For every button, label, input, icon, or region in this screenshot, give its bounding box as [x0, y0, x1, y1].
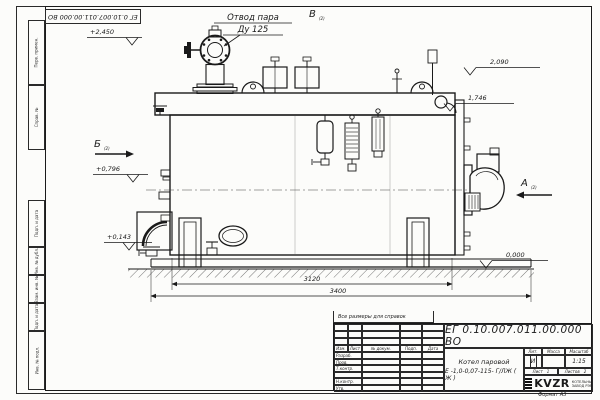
tb-mass-value	[542, 355, 565, 368]
tb-scale-header: Масштаб	[565, 348, 593, 355]
tb-sheet: Лист1	[524, 368, 558, 375]
tb-col-izm: Изм.	[334, 345, 348, 352]
kvzr-logo-icon	[524, 378, 532, 389]
tb-blank	[334, 324, 348, 331]
tb-blank	[400, 352, 422, 359]
tb-blank	[422, 338, 444, 345]
tb-row-nkontr: Н.контр.	[334, 378, 362, 385]
margin-box-perv-primen: Перв. примен.	[28, 20, 45, 85]
tb-blank	[362, 385, 400, 392]
margin-box-sprav: Справ. №	[28, 85, 45, 150]
tb-mass-header: Масса	[542, 348, 565, 355]
tb-blank	[334, 338, 348, 345]
tb-row-utv: Утв.	[334, 385, 362, 392]
kvzr-logo: KVZR КОТЕЛЬНЫЙ ЗАВОД РЭР	[524, 377, 593, 390]
tb-blank	[362, 324, 400, 331]
kvzr-logo-caption: КОТЕЛЬНЫЙ ЗАВОД РЭР	[572, 380, 593, 388]
tb-blank	[422, 352, 444, 359]
tb-blank	[400, 324, 422, 331]
reference-note-box: Все размеры для справок	[333, 311, 434, 323]
tb-blank	[348, 331, 362, 338]
tb-blank	[348, 338, 362, 345]
tb-scale-value: 1:15	[565, 355, 593, 368]
product-name-line2: Е -1,0-0,07-115- Г/ЛЖ ( Ж )	[445, 368, 523, 382]
tb-lit-divider	[536, 355, 537, 368]
tb-company-cell: KVZR КОТЕЛЬНЫЙ ЗАВОД РЭР	[524, 375, 593, 392]
margin-box-podp-data-2: Подп. и дата	[28, 303, 45, 331]
tb-sheets: Листов2	[558, 368, 593, 375]
tb-product-name: Котел паровой Е -1,0-0,07-115- Г/ЛЖ ( Ж …	[444, 348, 524, 392]
tb-blank	[422, 365, 444, 372]
margin-box-inv-dubl: Инв. № дубл.	[28, 247, 45, 275]
tb-blank	[400, 331, 422, 338]
margin-box-inv-podl: Инв. № подл.	[28, 331, 45, 390]
margin-box-podp-data-1: Подп. и дата	[28, 200, 45, 247]
tb-row-tkontr: Т.контр.	[334, 365, 362, 372]
tb-blank	[334, 331, 348, 338]
reference-note: Все размеры для справок	[338, 314, 406, 320]
tb-blank	[348, 324, 362, 331]
format-note: Формат А3	[538, 392, 566, 398]
tb-blank	[400, 378, 422, 385]
tb-col-doc: № докум.	[362, 345, 400, 352]
tb-blank	[362, 365, 400, 372]
tb-blank	[400, 338, 422, 345]
tb-col-podp: Подп.	[400, 345, 422, 352]
drawing-sheet: Отвод пара Ду 125	[0, 0, 600, 400]
top-stamp-box: ЕГ 0.10.007.011.00.000 ВО	[45, 9, 141, 24]
tb-blank	[362, 378, 400, 385]
kvzr-logo-text: KVZR	[534, 377, 569, 390]
tb-doc-number: ЕГ 0.10.007.011.00.000 ВО	[444, 324, 593, 348]
tb-lit-header: Лит.	[524, 348, 542, 355]
tb-lit-value: И	[524, 355, 542, 368]
title-block: Изм. Лист № докум. Подп. Дата Разраб. Пр…	[333, 323, 592, 391]
tb-lit-divider	[530, 355, 531, 368]
product-name-line1: Котел паровой	[459, 358, 510, 366]
tb-blank	[422, 331, 444, 338]
tb-blank	[422, 385, 444, 392]
tb-row-razrab: Разраб.	[334, 352, 362, 359]
tb-col-data: Дата	[422, 345, 444, 352]
tb-blank	[400, 365, 422, 372]
tb-col-list: Лист	[348, 345, 362, 352]
tb-blank	[362, 331, 400, 338]
tb-blank	[422, 378, 444, 385]
tb-blank	[362, 338, 400, 345]
top-stamp-number: ЕГ 0.10.007.011.00.000 ВО	[48, 13, 138, 21]
margin-box-vzam-inv: Взам. инв. №	[28, 275, 45, 303]
tb-blank	[422, 324, 444, 331]
tb-blank	[400, 385, 422, 392]
tb-blank	[362, 352, 400, 359]
